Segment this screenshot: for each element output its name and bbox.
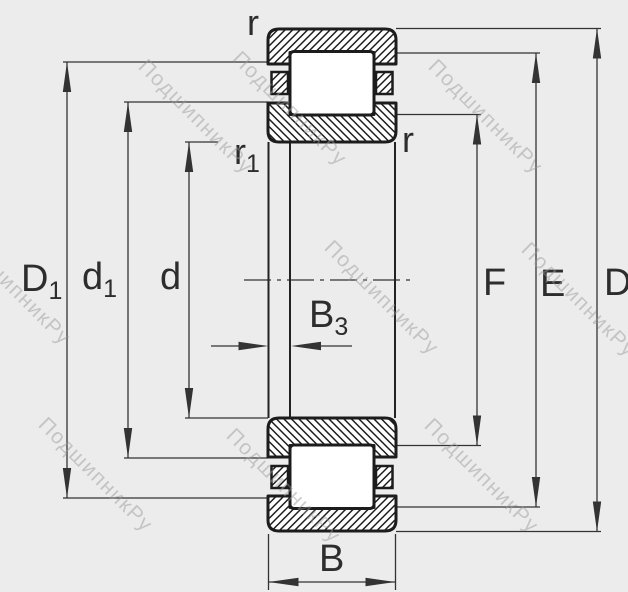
- label-d1: d1: [82, 258, 117, 302]
- label-r1: r1: [234, 134, 260, 177]
- label-B3: B3: [309, 296, 348, 340]
- cage-bottom-left: [272, 466, 289, 488]
- bearing-top-section: [268, 29, 396, 142]
- label-B: B: [319, 540, 344, 578]
- label-D: D: [604, 264, 628, 302]
- label-D1: D1: [21, 260, 62, 304]
- label-E: E: [540, 265, 565, 303]
- cage-top-right: [376, 72, 393, 94]
- cage-bottom-right: [376, 466, 393, 488]
- label-B3-main: B: [309, 294, 334, 336]
- label-B3-sub: 3: [334, 313, 348, 341]
- label-d1-sub: 1: [103, 275, 117, 303]
- label-r-top: r: [247, 5, 259, 41]
- label-D1-sub: 1: [48, 277, 62, 305]
- roller-top: [290, 52, 374, 116]
- label-F: F: [483, 264, 506, 302]
- label-d1-main: d: [82, 256, 103, 298]
- bearing-bottom-section: [268, 418, 396, 531]
- label-r-right: r: [402, 122, 414, 158]
- label-r1-main: r: [234, 131, 246, 172]
- label-D1-main: D: [21, 258, 48, 300]
- roller-bottom: [290, 445, 374, 509]
- bearing-dimension-diagram: r r r1 D1 d1 d B3 B F E D ПодшипникРу По…: [0, 0, 628, 592]
- label-d: d: [160, 258, 181, 296]
- cage-top-left: [272, 72, 289, 94]
- label-r1-sub: 1: [246, 150, 260, 178]
